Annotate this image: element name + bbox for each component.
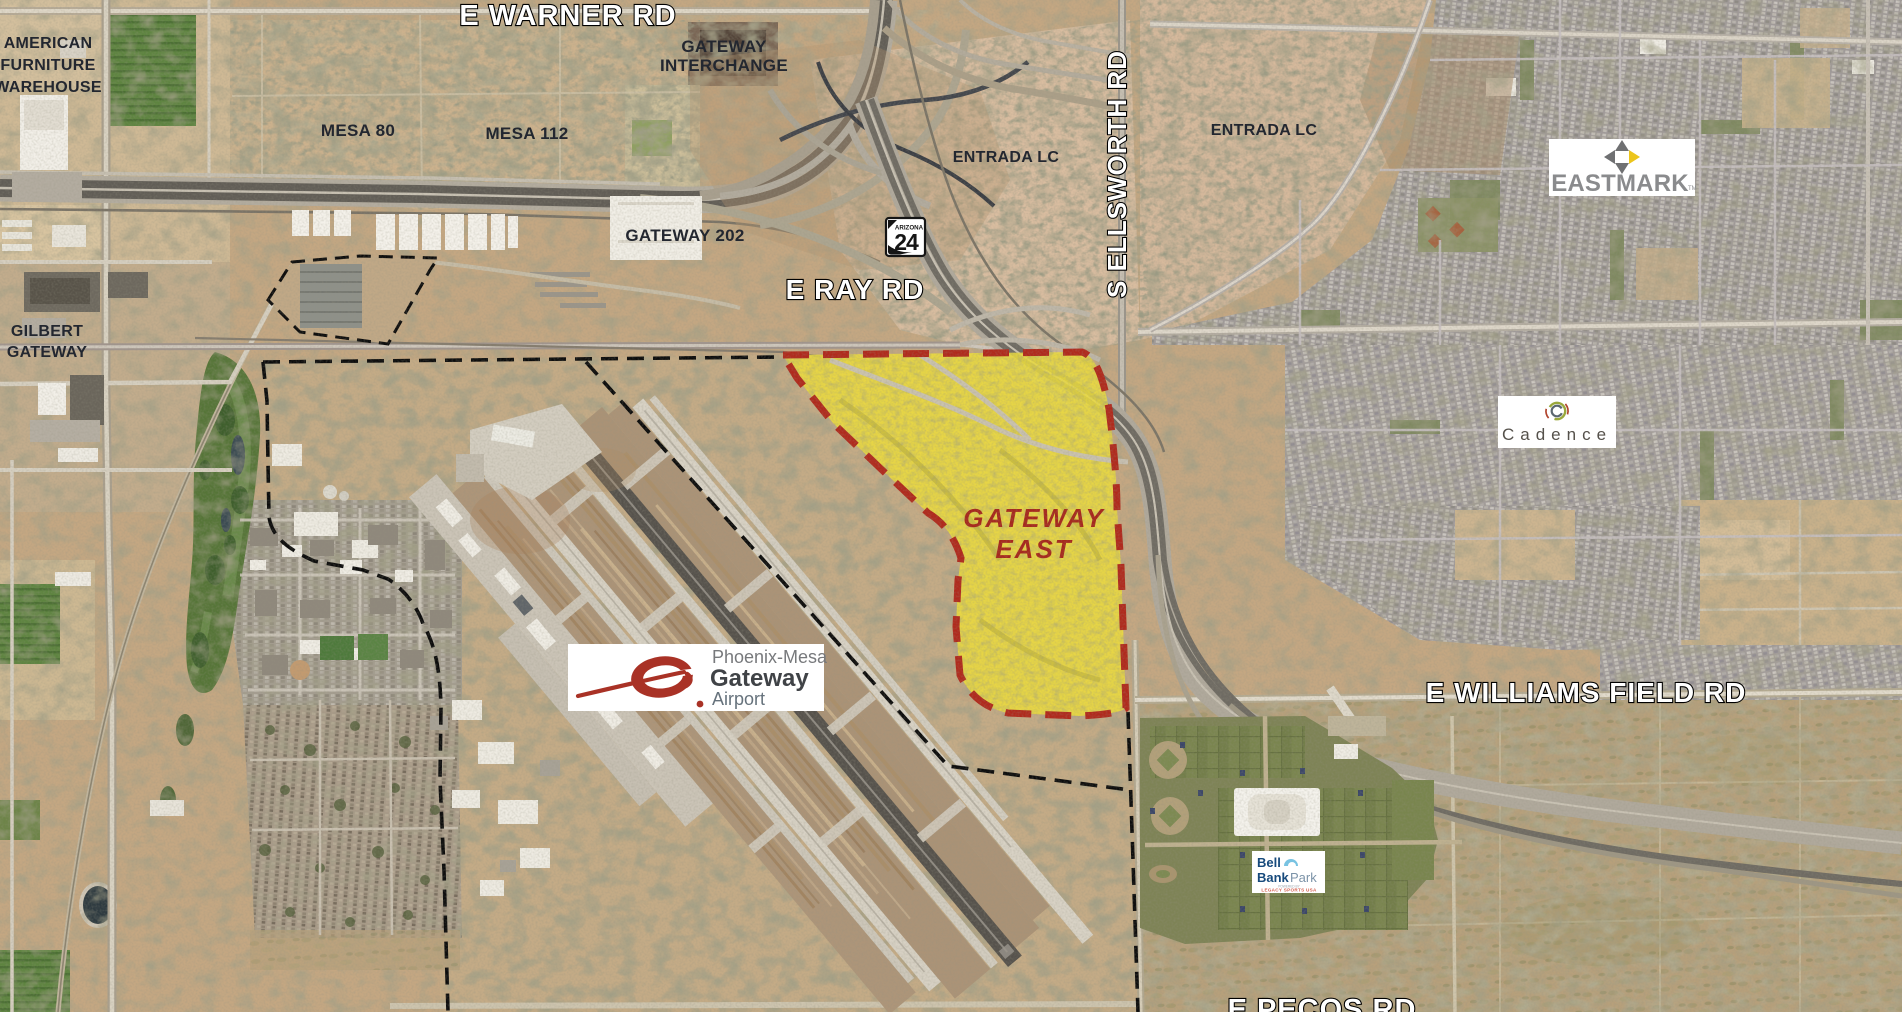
svg-text:Gateway: Gateway: [710, 665, 809, 692]
svg-text:Park: Park: [1290, 870, 1317, 885]
svg-text:EASTMARK: EASTMARK: [1551, 170, 1689, 197]
svg-text:WAREHOUSE: WAREHOUSE: [0, 79, 102, 96]
svg-text:Cadence: Cadence: [1502, 425, 1612, 444]
svg-text:FURNITURE: FURNITURE: [0, 57, 95, 74]
svg-text:TM: TM: [1688, 186, 1697, 192]
svg-text:E WILLIAMS FIELD RD: E WILLIAMS FIELD RD: [1426, 677, 1747, 708]
svg-text:GILBERT: GILBERT: [11, 323, 83, 340]
svg-text:MESA 80: MESA 80: [321, 121, 395, 140]
svg-text:GATEWAY: GATEWAY: [681, 37, 767, 56]
svg-text:Airport: Airport: [712, 689, 765, 709]
svg-text:S ELLSWORTH RD: S ELLSWORTH RD: [1102, 50, 1132, 298]
svg-text:ENTRADA LC: ENTRADA LC: [1211, 122, 1318, 139]
svg-text:E PECOS RD: E PECOS RD: [1228, 994, 1417, 1012]
svg-text:GATEWAY: GATEWAY: [7, 344, 87, 361]
svg-text:24: 24: [894, 229, 919, 255]
svg-text:Bank: Bank: [1257, 870, 1290, 885]
svg-text:MESA 112: MESA 112: [485, 124, 568, 143]
svg-text:Bell: Bell: [1257, 855, 1281, 870]
svg-text:E WARNER RD: E WARNER RD: [459, 0, 676, 32]
svg-text:ENTRADA LC: ENTRADA LC: [953, 149, 1060, 166]
svg-text:LEGACY SPORTS USA: LEGACY SPORTS USA: [1261, 888, 1317, 893]
svg-text:INTERCHANGE: INTERCHANGE: [660, 56, 788, 75]
svg-text:AMERICAN: AMERICAN: [4, 35, 93, 52]
svg-text:GATEWAY 202: GATEWAY 202: [625, 226, 744, 245]
svg-text:E RAY RD: E RAY RD: [786, 274, 925, 305]
svg-text:Phoenix-Mesa: Phoenix-Mesa: [712, 647, 828, 667]
